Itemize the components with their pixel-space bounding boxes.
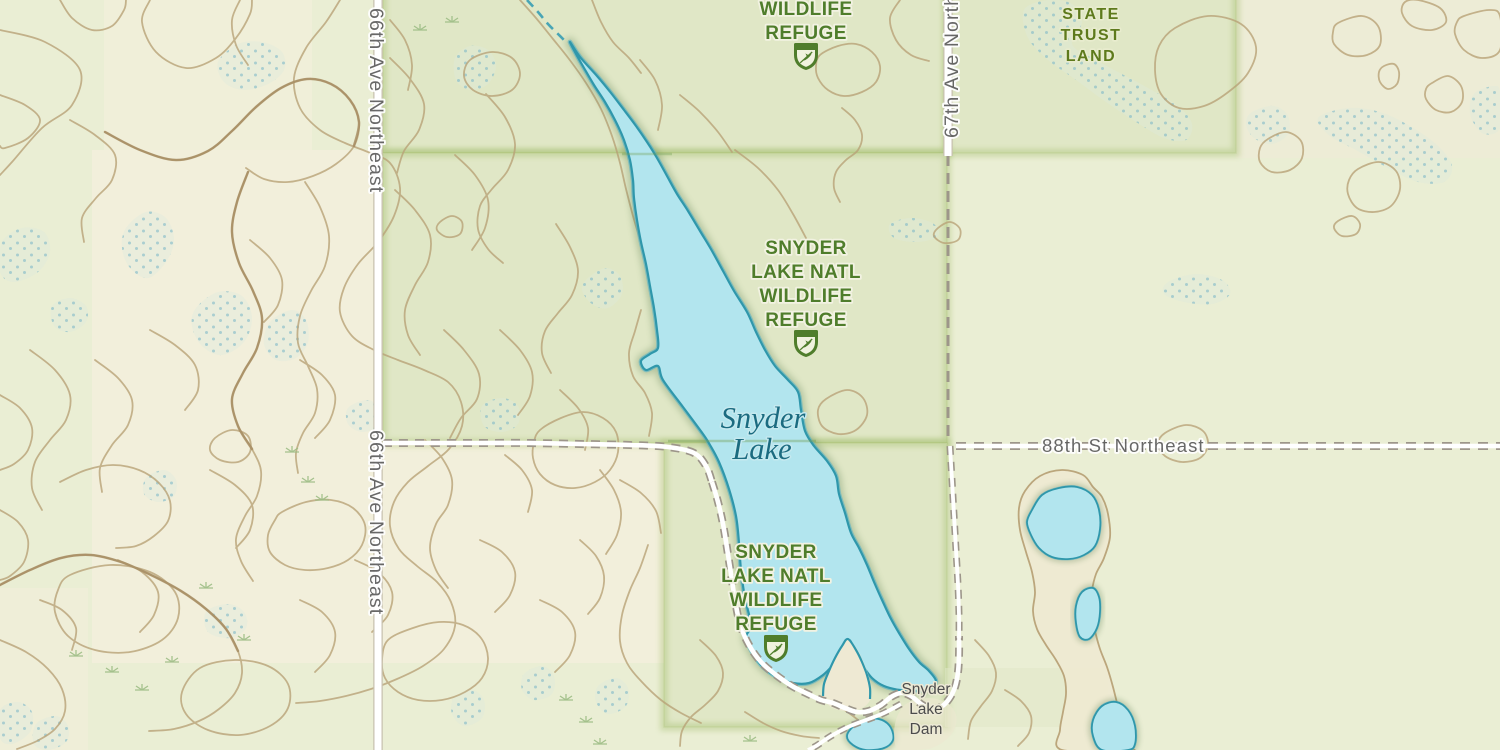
svg-text:Lake: Lake [731, 432, 791, 466]
svg-text:TRUST: TRUST [1061, 27, 1122, 44]
svg-text:Lake: Lake [909, 701, 943, 718]
svg-text:SNYDER: SNYDER [735, 542, 817, 563]
svg-text:LAKE NATL: LAKE NATL [721, 566, 831, 587]
svg-text:Dam: Dam [910, 721, 943, 738]
svg-text:REFUGE: REFUGE [735, 614, 817, 635]
svg-text:REFUGE: REFUGE [765, 310, 847, 331]
svg-text:67th Ave Northeast: 67th Ave Northeast [941, 0, 963, 138]
svg-text:SNYDER: SNYDER [765, 238, 847, 259]
svg-text:88th St Northeast: 88th St Northeast [1042, 435, 1205, 456]
svg-text:LAND: LAND [1066, 48, 1116, 65]
svg-text:WILDLIFE: WILDLIFE [730, 590, 823, 611]
svg-text:Snyder: Snyder [901, 681, 950, 698]
svg-text:66th Ave Northeast: 66th Ave Northeast [365, 8, 387, 193]
svg-text:STATE: STATE [1062, 6, 1120, 23]
svg-text:66th Ave Northeast: 66th Ave Northeast [365, 430, 387, 615]
svg-text:REFUGE: REFUGE [765, 23, 847, 44]
svg-text:LAKE NATL: LAKE NATL [751, 262, 861, 283]
svg-text:WILDLIFE: WILDLIFE [760, 0, 853, 20]
svg-text:WILDLIFE: WILDLIFE [760, 286, 853, 307]
svg-text:Snyder: Snyder [721, 401, 806, 435]
